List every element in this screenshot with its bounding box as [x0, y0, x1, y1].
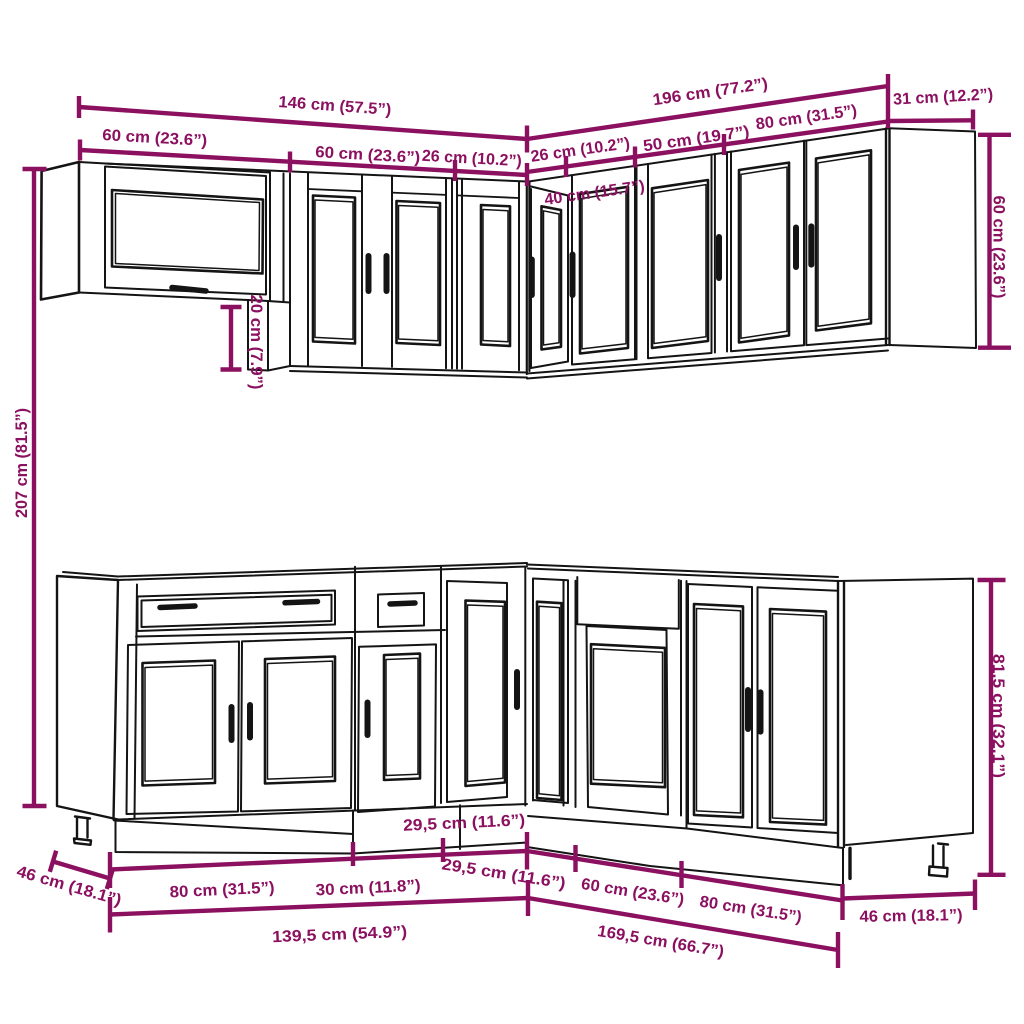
svg-text:26 cm (10.2”): 26 cm (10.2”) — [421, 147, 522, 171]
svg-text:46 cm (18.1”): 46 cm (18.1”) — [859, 906, 962, 926]
svg-text:60 cm (23.6”): 60 cm (23.6”) — [990, 196, 1008, 299]
svg-text:81,5 cm (32.1”): 81,5 cm (32.1”) — [989, 654, 1007, 778]
svg-text:80 cm (31.5”): 80 cm (31.5”) — [698, 893, 803, 927]
svg-text:146 cm (57.5”): 146 cm (57.5”) — [278, 93, 392, 119]
svg-text:20 cm (7.9”): 20 cm (7.9”) — [247, 295, 265, 390]
svg-text:139,5 cm (54.9”): 139,5 cm (54.9”) — [272, 923, 408, 946]
svg-text:40 cm (15.7”): 40 cm (15.7”) — [543, 177, 646, 209]
svg-text:29,5 cm (11.6”): 29,5 cm (11.6”) — [403, 811, 526, 835]
svg-text:30 cm (11.8”): 30 cm (11.8”) — [315, 877, 421, 900]
svg-text:207 cm (81.5”): 207 cm (81.5”) — [13, 408, 31, 518]
svg-text:60 cm (23.6”): 60 cm (23.6”) — [102, 126, 208, 150]
svg-text:29,5 cm (11.6”): 29,5 cm (11.6”) — [441, 855, 567, 892]
svg-text:31 cm (12.2”): 31 cm (12.2”) — [893, 85, 994, 108]
svg-text:80 cm (31.5”): 80 cm (31.5”) — [169, 879, 275, 902]
svg-text:60 cm (23.6”): 60 cm (23.6”) — [580, 875, 686, 909]
